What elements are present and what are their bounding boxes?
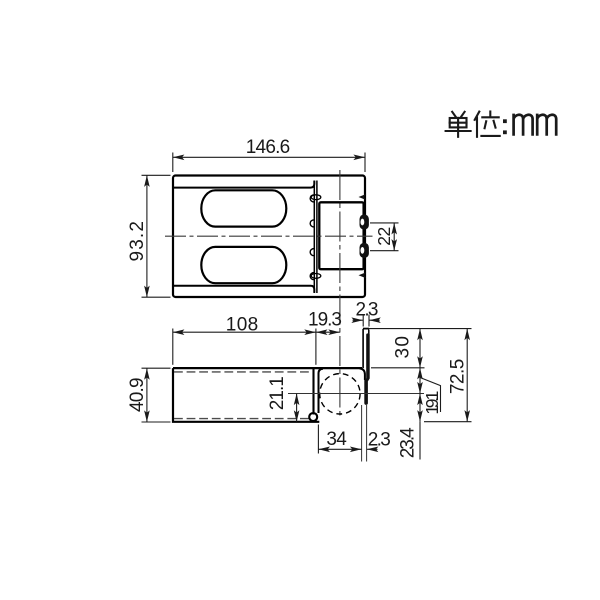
- svg-text:72.5: 72.5: [448, 359, 469, 395]
- svg-text:30: 30: [393, 336, 414, 359]
- svg-text:19.3: 19.3: [308, 310, 342, 331]
- svg-text:146.6: 146.6: [246, 137, 291, 158]
- svg-text:34: 34: [326, 429, 347, 450]
- svg-text:2.3: 2.3: [368, 429, 391, 450]
- svg-text:2.3: 2.3: [356, 300, 379, 321]
- svg-text:108: 108: [226, 315, 259, 336]
- svg-text:93.2: 93.2: [127, 221, 148, 261]
- svg-text:40.9: 40.9: [127, 377, 148, 412]
- svg-text:21.1: 21.1: [267, 376, 288, 410]
- svg-text:22: 22: [374, 227, 394, 246]
- svg-text:23.4: 23.4: [398, 427, 419, 458]
- svg-text:19.1: 19.1: [422, 391, 442, 415]
